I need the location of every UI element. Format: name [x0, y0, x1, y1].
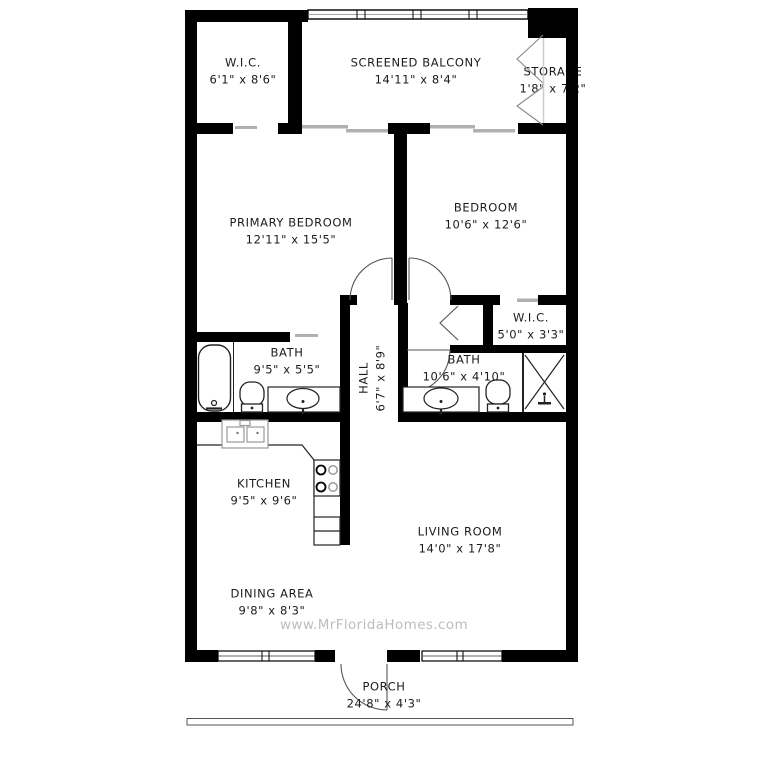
bathtub — [199, 342, 234, 412]
kitchen-sink — [222, 420, 268, 448]
room-dims: 10'6" x 12'6" — [445, 216, 528, 233]
floor-plan: STORAGE 1'8" x 7'2" — [0, 0, 759, 768]
room-label-bath2: BATH 10'6" x 4'10" — [423, 351, 506, 384]
room-dims: 12'11" x 15'5" — [229, 231, 352, 248]
room-label-kitchen: KITCHEN 9'5" x 9'6" — [231, 475, 298, 508]
room-name: HALL — [355, 345, 372, 412]
slider-bath1 — [295, 334, 318, 337]
window-dining — [218, 651, 315, 661]
room-dims: 5'0" x 3'3" — [498, 326, 565, 343]
wall-bedroom-divider — [394, 133, 407, 305]
room-label-wic-top: W.I.C. 6'1" x 8'6" — [210, 54, 277, 87]
room-dims: 14'0" x 17'8" — [418, 540, 503, 557]
slider-wic2 — [517, 299, 538, 303]
wall-kitchen-right — [340, 297, 350, 545]
wall-top-right-block — [528, 8, 578, 38]
room-name: SCREENED BALCONY — [351, 54, 482, 71]
wall-bath2-bottom — [398, 412, 578, 422]
toilet-bath2 — [486, 380, 510, 412]
room-label-porch: PORCH 24'8" x 4'3" — [347, 678, 422, 711]
room-label-bedroom: BEDROOM 10'6" x 12'6" — [445, 199, 528, 232]
wall-wic2-left — [483, 295, 493, 353]
bifold-storage-upper — [517, 35, 543, 83]
shower — [523, 353, 564, 412]
room-name: BATH — [423, 351, 506, 368]
porch-edge — [187, 719, 573, 726]
watermark: www.MrFloridaHomes.com — [280, 617, 468, 633]
room-name: PORCH — [347, 678, 422, 695]
room-name: LIVING ROOM — [418, 523, 503, 540]
room-dims: 24'8" x 4'3" — [347, 695, 422, 712]
wall-wic-balcony — [288, 10, 302, 133]
slider-wic1 — [235, 126, 257, 129]
wall-bath1-top — [185, 332, 290, 342]
toilet-bath1 — [240, 382, 264, 412]
room-dims: 6'1" x 8'6" — [210, 71, 277, 88]
bifold-storage-lower — [517, 87, 543, 125]
room-dims: 9'5" x 9'6" — [231, 492, 298, 509]
door-arc-bedroom — [409, 258, 451, 300]
room-label-dining-area: DINING AREA 9'8" x 8'3" — [230, 585, 313, 618]
room-label-hall: HALL 6'7" x 8'9" — [355, 345, 388, 412]
room-label-balcony: SCREENED BALCONY 14'11" x 8'4" — [351, 54, 482, 87]
room-label-primary-bedroom: PRIMARY BEDROOM 12'11" x 15'5" — [229, 214, 352, 247]
room-dims: 9'5" x 5'5" — [254, 361, 321, 378]
room-label-bath1: BATH 9'5" x 5'5" — [254, 344, 321, 377]
bifold-hall-closet — [440, 306, 458, 340]
slider-primary-balcony — [302, 125, 348, 129]
room-dims: 14'11" x 8'4" — [351, 71, 482, 88]
door-arc-primary — [350, 258, 392, 300]
sink-bath1 — [268, 387, 340, 414]
room-name: BEDROOM — [445, 199, 528, 216]
slider-bedroom-balcony — [430, 125, 475, 129]
room-name: PRIMARY BEDROOM — [229, 214, 352, 231]
room-name: KITCHEN — [231, 475, 298, 492]
room-label-living-room: LIVING ROOM 14'0" x 17'8" — [418, 523, 503, 556]
room-dims: 10'6" x 4'10" — [423, 368, 506, 385]
room-name: W.I.C. — [210, 54, 277, 71]
wall-right — [566, 8, 578, 662]
window-living — [422, 651, 502, 661]
room-name: BATH — [254, 344, 321, 361]
screen-wall — [308, 10, 528, 19]
room-label-wic-right: W.I.C. 5'0" x 3'3" — [498, 309, 565, 342]
room-name: DINING AREA — [230, 585, 313, 602]
sink-bath2 — [403, 387, 479, 415]
room-name: W.I.C. — [498, 309, 565, 326]
room-dims: 6'7" x 8'9" — [372, 345, 389, 412]
